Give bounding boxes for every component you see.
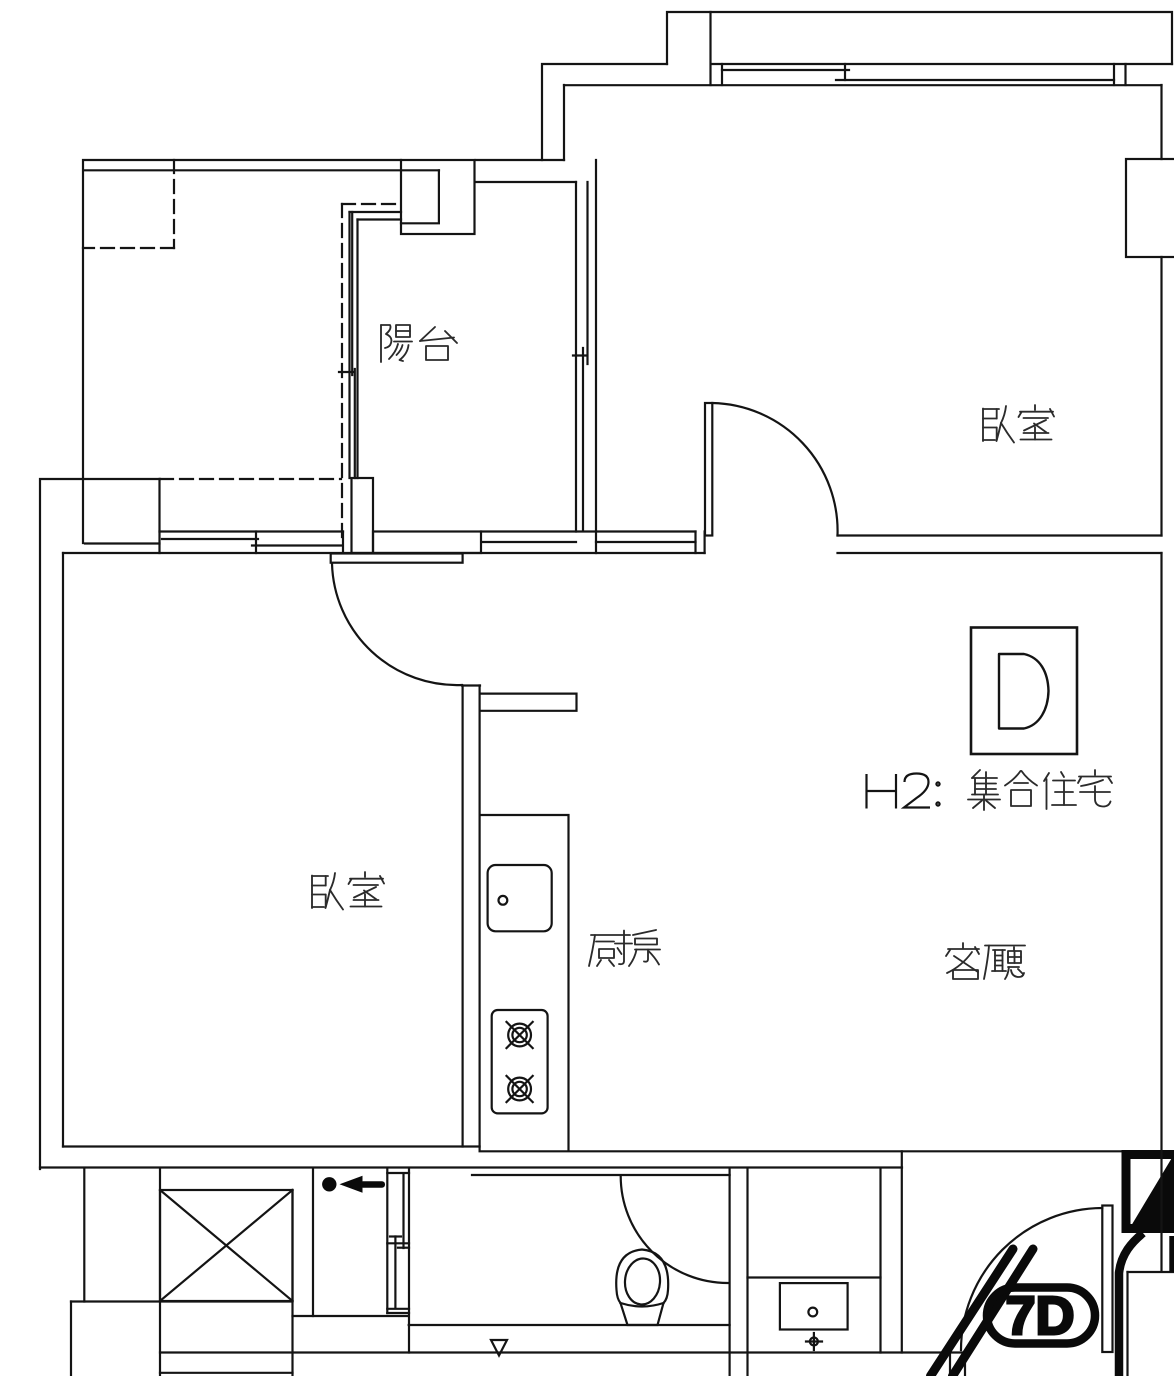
svg-text:7D: 7D [1005,1286,1074,1346]
